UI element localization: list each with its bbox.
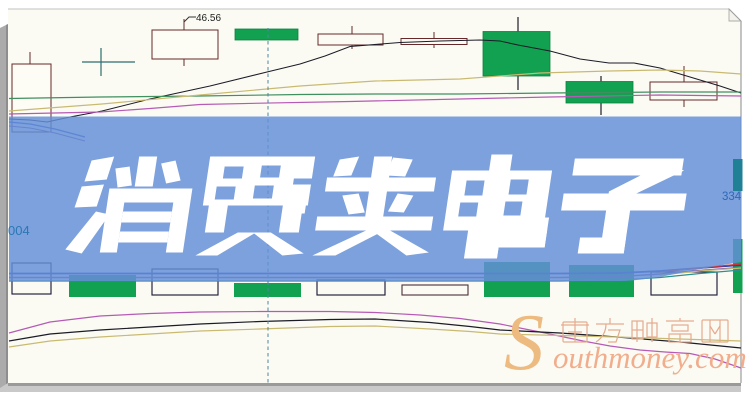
svg-text:46.56: 46.56 — [196, 13, 221, 24]
svg-text:outhmoney.com: outhmoney.com — [553, 340, 747, 375]
svg-text:S: S — [504, 299, 544, 387]
svg-text:004: 004 — [8, 223, 30, 238]
svg-text:334: 334 — [722, 191, 742, 203]
